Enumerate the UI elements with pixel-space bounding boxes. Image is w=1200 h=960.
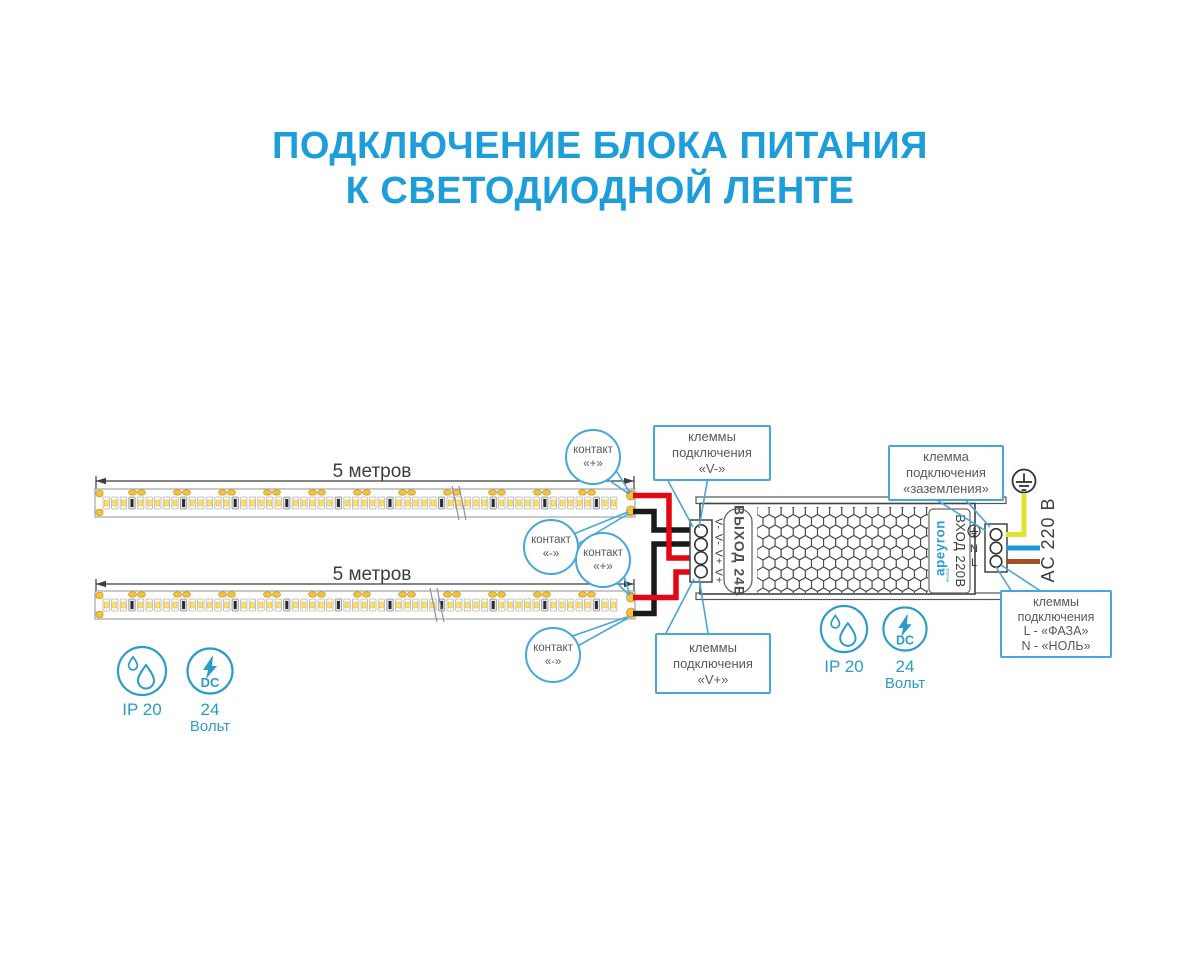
callout-text: L - «ФАЗА» <box>1002 624 1110 639</box>
voltage-unit: Вольт <box>885 676 925 692</box>
callout-text: «-» <box>527 655 579 669</box>
wire-ground-yellow <box>1006 494 1024 535</box>
callout-contact-minus-2: контакт «-» <box>525 627 581 683</box>
dc-lightning-icon: DC <box>881 603 929 655</box>
dc-voltage-badge: DC 24 Вольт <box>875 603 935 692</box>
strip1-length-label: 5 метров <box>333 461 412 482</box>
callout-text: контакт <box>567 443 619 457</box>
callout-text: «-» <box>525 547 577 561</box>
callout-text: «V+» <box>657 672 769 688</box>
ip-rating-label: IP 20 <box>122 701 161 719</box>
psu-output-label: ВЫХОД 24В <box>731 505 747 597</box>
dc-label: DC <box>201 675 220 690</box>
ip-rating-badge: IP 20 <box>112 644 172 735</box>
callout-text: контакт <box>577 546 629 560</box>
strip2-length-label: 5 метров <box>333 564 412 585</box>
callout-contact-plus-2: контакт «+» <box>575 532 631 588</box>
dc-lightning-icon: DC <box>185 644 235 698</box>
brand-logo: apeyron <box>933 520 948 576</box>
callout-text: «+» <box>577 560 629 574</box>
callout-text: «+» <box>567 457 619 471</box>
callout-text: клеммы <box>655 429 769 445</box>
callout-text: подключения <box>657 656 769 672</box>
callout-text: клеммы <box>657 640 769 656</box>
psu-output-terminals-label: V- V- V+ V+ <box>713 518 725 584</box>
callout-text: «V-» <box>655 461 769 477</box>
callout-contact-plus-1: контакт «+» <box>565 429 621 485</box>
dc-wires <box>633 496 697 614</box>
diagram-stage: ПОДКЛЮЧЕНИЕ БЛОКА ПИТАНИЯ К СВЕТОДИОДНОЙ… <box>0 0 1200 960</box>
led-strip-1 <box>95 486 636 520</box>
mains-voltage-label: AC 220 В <box>1038 497 1058 582</box>
callout-terminals-vminus: клеммы подключения «V-» <box>653 425 771 481</box>
dc-voltage-badge: DC 24 Вольт <box>180 644 240 735</box>
wire-red-strip2 <box>633 572 697 598</box>
dc-label: DC <box>896 633 914 647</box>
brand-sub: electric <box>945 567 950 582</box>
led-strip-2 <box>95 588 636 622</box>
psu-input-terminals <box>990 529 1002 568</box>
callout-text: контакт <box>525 533 577 547</box>
psu-vent-honeycomb <box>757 504 939 602</box>
ip-rating-badge: IP 20 <box>814 603 874 692</box>
callout-terminals-mains: клеммы подключения L - «ФАЗА» N - «НОЛЬ» <box>1000 590 1112 658</box>
callout-text: «заземления» <box>890 481 1002 497</box>
callout-text: подключения <box>890 465 1002 481</box>
voltage-value: 24 <box>896 658 915 676</box>
water-drops-icon <box>818 603 870 655</box>
psu-input-label: ВХОД 220В <box>953 514 968 587</box>
wire-black-strip2 <box>633 544 697 614</box>
water-drops-icon <box>115 644 169 698</box>
psu-neutral-label: N <box>970 543 978 555</box>
psu-line-label: L <box>971 557 977 569</box>
ground-symbol <box>1013 470 1036 493</box>
callout-text: клеммы <box>1002 595 1110 610</box>
callout-text: подключения <box>1002 610 1110 625</box>
spec-badges-right: IP 20 DC 24 Вольт <box>814 603 935 692</box>
voltage-unit: Вольт <box>190 719 230 735</box>
callout-text: клемма <box>890 449 1002 465</box>
ac-wires <box>1006 494 1040 562</box>
power-supply-unit: ВЫХОД 24В V- V- V+ V+ apeyron electric В… <box>690 497 1007 602</box>
wire-black-strip1 <box>633 512 697 531</box>
voltage-value: 24 <box>201 701 220 719</box>
spec-badges-left: IP 20 DC 24 Вольт <box>112 644 240 735</box>
ip-rating-label: IP 20 <box>824 658 863 676</box>
callout-terminals-vplus: клеммы подключения «V+» <box>655 633 771 694</box>
wire-red-strip1 <box>633 496 697 559</box>
callout-text: контакт <box>527 641 579 655</box>
callout-terminal-ground: клемма подключения «заземления» <box>888 445 1004 501</box>
callout-contact-minus-1: контакт «-» <box>523 519 579 575</box>
callout-text: подключения <box>655 445 769 461</box>
callout-text: N - «НОЛЬ» <box>1002 639 1110 654</box>
